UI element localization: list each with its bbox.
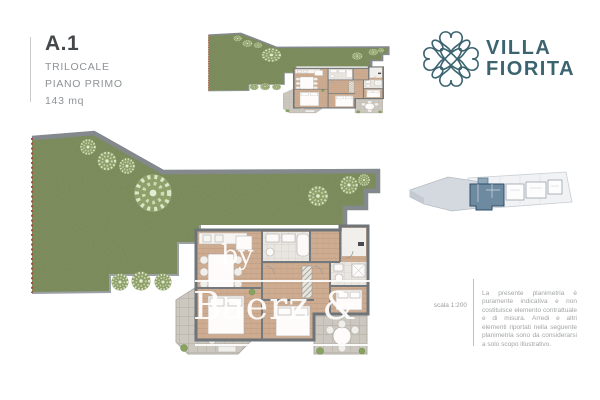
disclaimer-text: La presente planimetria è puramente indi… <box>482 290 577 349</box>
scale-label: scala 1:200 <box>423 302 467 309</box>
unit-code: A.1 <box>45 32 123 56</box>
flower-knot-icon <box>424 32 478 86</box>
brand-name: VILLA FIORITA <box>486 38 575 80</box>
unit-info-block: A.1 TRILOCALE PIANO PRIMO 143 mq <box>45 32 123 107</box>
unit-info-divider <box>30 37 31 102</box>
main-floor-plan <box>32 133 378 355</box>
mini-site-plan <box>208 33 388 113</box>
floorplan-page: A.1 TRILOCALE PIANO PRIMO 143 mq VILLA F… <box>0 0 600 400</box>
unit-location-keyplan <box>410 172 572 211</box>
brand-name-line2: FIORITA <box>486 59 575 80</box>
highlighted-unit <box>470 184 504 210</box>
brand-name-line1: VILLA <box>486 38 575 59</box>
unit-type: TRILOCALE <box>45 61 123 73</box>
unit-area: 143 mq <box>45 95 123 107</box>
disclaimer-divider <box>473 279 474 346</box>
unit-floor: PIANO PRIMO <box>45 78 123 90</box>
